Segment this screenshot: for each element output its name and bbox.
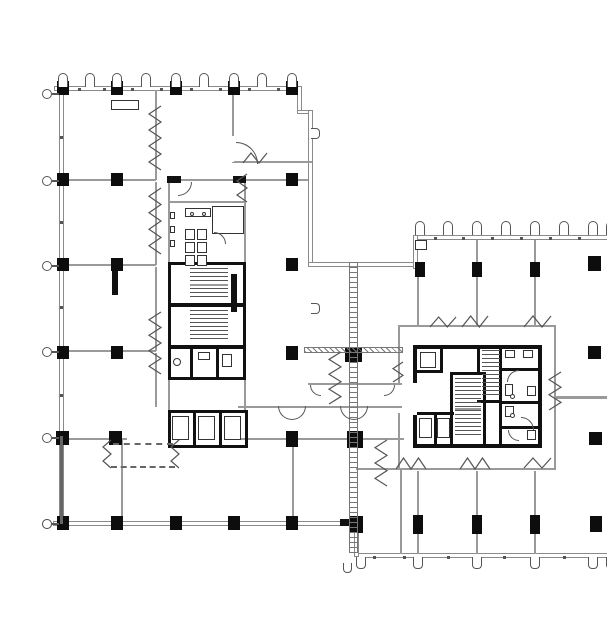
undefined <box>278 406 292 420</box>
fixture <box>197 242 207 253</box>
elevator-car <box>224 416 241 440</box>
wall-dot <box>60 394 63 397</box>
wall-dot <box>578 237 581 240</box>
elevator-car <box>198 416 215 440</box>
door-opening <box>413 383 417 415</box>
zigzag-break-icon <box>430 316 456 328</box>
column <box>588 346 601 359</box>
interior-wall <box>168 201 246 203</box>
window-tick-south-icon <box>588 557 598 569</box>
wall-dot <box>219 88 222 91</box>
fixture <box>527 386 536 396</box>
window-tick-north-icon <box>472 221 482 235</box>
interior-wall <box>168 380 170 410</box>
stair-treads <box>190 310 228 342</box>
undefined <box>178 182 192 196</box>
window-tick-north-icon <box>530 221 540 235</box>
zigzag-break-icon <box>548 372 562 410</box>
window-tick-north-icon <box>229 73 239 87</box>
window-tick-west-icon <box>52 523 59 525</box>
wall-dot <box>190 88 193 91</box>
interior-wall <box>238 406 402 408</box>
column <box>170 516 182 530</box>
column <box>472 262 482 277</box>
zigzag-break-icon <box>396 457 426 470</box>
column <box>286 346 298 360</box>
window-tick-west-icon <box>52 265 59 267</box>
window-tick-west-icon <box>42 433 52 443</box>
window-tick-west-icon <box>42 89 52 99</box>
interior-wall <box>61 264 156 266</box>
zigzag-break-icon <box>374 440 388 486</box>
fixture <box>185 208 211 217</box>
fixture <box>527 430 536 440</box>
window-tick-south-icon <box>356 557 366 569</box>
column <box>588 256 601 271</box>
wall-dot <box>60 136 63 139</box>
wall-dot <box>60 306 63 309</box>
interior-wall <box>244 380 246 410</box>
exterior-wall <box>308 262 420 267</box>
window-tick-north-icon <box>287 73 297 87</box>
core-wall <box>450 372 453 448</box>
interior-wall <box>417 269 419 327</box>
window-tick-west-icon <box>52 93 59 95</box>
window-tick-north-icon <box>257 73 267 87</box>
window-tick-west-icon <box>52 180 59 182</box>
wall-dot <box>447 556 450 559</box>
core-wall <box>477 345 480 375</box>
window-tick-north-icon <box>171 73 181 87</box>
zigzag-break-icon <box>148 312 162 374</box>
wall-dot <box>549 237 552 240</box>
zigzag-break-icon <box>148 106 162 170</box>
urinal-icon <box>170 212 175 219</box>
column <box>228 516 240 530</box>
zigzag-break-icon <box>460 457 490 470</box>
column <box>286 258 298 271</box>
core-wall <box>417 412 454 415</box>
zigzag-break-icon <box>236 174 248 202</box>
interior-wall <box>121 439 123 522</box>
elevator-car <box>172 416 189 440</box>
core-wall <box>112 269 118 295</box>
column <box>111 173 123 186</box>
wall-dot <box>503 556 506 559</box>
sink-icon <box>190 212 194 216</box>
dashed-outline <box>111 466 175 468</box>
interior-wall <box>417 471 419 554</box>
window-tick-south-icon <box>343 563 352 573</box>
window-tick-west-icon <box>42 519 52 529</box>
elevator-car <box>419 418 432 438</box>
column <box>530 515 540 534</box>
undefined <box>292 406 306 420</box>
window-tick-north-icon <box>588 221 598 235</box>
window-tick-north-icon <box>112 73 122 87</box>
urinal-icon <box>170 240 175 247</box>
window-tick-east-icon <box>311 128 320 139</box>
fixture <box>505 350 515 358</box>
interior-wall <box>61 350 156 352</box>
zigzag-break-icon <box>462 315 488 328</box>
window-tick-south-icon <box>472 557 482 569</box>
wall-dot <box>160 88 163 91</box>
wall-dot <box>462 237 465 240</box>
window-tick-north-icon <box>443 221 453 235</box>
column <box>530 262 540 277</box>
window-tick-west-icon <box>42 176 52 186</box>
core-wall <box>231 274 237 312</box>
window-tick-west-icon <box>42 261 52 271</box>
interior-wall <box>476 240 478 327</box>
window-tick-north-icon <box>85 73 95 87</box>
column <box>413 515 423 534</box>
column <box>286 516 298 530</box>
wall-dot <box>277 88 280 91</box>
interior-wall <box>476 471 478 554</box>
sink-icon <box>510 394 515 399</box>
column <box>111 258 123 271</box>
sink-icon <box>202 212 206 216</box>
stair-treads <box>482 350 500 398</box>
core-wall <box>452 372 486 375</box>
sink-icon <box>510 413 515 418</box>
window-tick-north-icon <box>501 221 511 235</box>
wall-dot <box>434 237 437 240</box>
column <box>286 431 298 447</box>
wall-dot <box>60 221 63 224</box>
core-wall <box>193 412 196 446</box>
core-wall <box>501 401 542 404</box>
wall-dot <box>491 237 494 240</box>
interior-wall <box>556 396 607 399</box>
fixture <box>523 350 533 358</box>
fixture <box>212 206 244 234</box>
interior-wall <box>61 179 156 181</box>
wall-dot <box>403 556 406 559</box>
zigzag-break-icon <box>102 440 112 468</box>
fixture <box>415 240 427 250</box>
elevator-car <box>437 418 450 438</box>
interior-wall <box>534 471 536 554</box>
column <box>472 515 482 534</box>
interior-wall <box>168 179 170 266</box>
exterior-wall <box>60 436 63 524</box>
window-tick-south-icon <box>413 557 423 569</box>
sink-icon <box>173 358 181 366</box>
hatched-wall <box>304 347 403 353</box>
core-wall <box>440 345 443 372</box>
zigzag-break-icon <box>148 188 162 254</box>
zigzag-break-icon <box>524 315 551 328</box>
wall-dot <box>520 237 523 240</box>
undefined <box>340 406 354 420</box>
zigzag-break-icon <box>392 362 404 382</box>
window-tick-north-icon <box>559 221 569 235</box>
core-wall <box>190 348 193 378</box>
column <box>589 432 602 445</box>
interior-wall <box>244 179 308 181</box>
wall-dot <box>131 88 134 91</box>
wall-dot <box>248 88 251 91</box>
wall-dot <box>103 88 106 91</box>
fixture <box>197 229 207 240</box>
stair-landing <box>190 284 228 286</box>
dashed-outline <box>113 443 173 445</box>
fixture <box>185 242 195 253</box>
core-wall <box>219 412 222 446</box>
window-tick-north-icon <box>141 73 151 87</box>
wall-dot <box>78 88 81 91</box>
fixture <box>185 229 195 240</box>
stair-landing <box>455 408 481 410</box>
interior-wall <box>400 469 402 554</box>
fixture <box>197 255 207 266</box>
undefined <box>384 385 395 396</box>
interior-wall <box>292 446 294 522</box>
core-wall <box>216 348 219 378</box>
wall-dot <box>563 556 566 559</box>
fixture <box>198 352 210 360</box>
window-tick-east-icon <box>311 303 320 314</box>
wall-dot <box>373 556 376 559</box>
column <box>590 516 602 532</box>
fixture <box>185 255 195 266</box>
zigzag-break-icon <box>524 457 551 469</box>
core-wall <box>501 368 542 371</box>
window-tick-north-icon <box>415 221 425 235</box>
column <box>111 346 123 359</box>
elevator-car <box>420 352 436 368</box>
floor-plan-canvas: Typical floor plan — two offset rectangu… <box>40 16 607 616</box>
column <box>111 516 123 530</box>
fixture <box>222 354 232 367</box>
urinal-icon <box>170 226 175 233</box>
fixture <box>111 100 139 110</box>
column <box>286 173 298 186</box>
window-tick-south-icon <box>530 557 540 569</box>
zigzag-break-icon <box>243 152 267 164</box>
zigzag-break-icon <box>328 352 342 404</box>
interior-wall <box>534 240 536 327</box>
door-opening <box>232 136 234 162</box>
exterior-wall <box>53 521 359 526</box>
column <box>415 262 425 277</box>
undefined <box>310 385 321 396</box>
window-tick-west-icon <box>42 347 52 357</box>
window-tick-north-icon <box>58 73 68 87</box>
window-tick-west-icon <box>52 437 59 439</box>
window-tick-west-icon <box>52 351 59 353</box>
window-tick-north-icon <box>199 73 209 87</box>
undefined <box>354 406 368 420</box>
core-wall <box>413 370 443 373</box>
